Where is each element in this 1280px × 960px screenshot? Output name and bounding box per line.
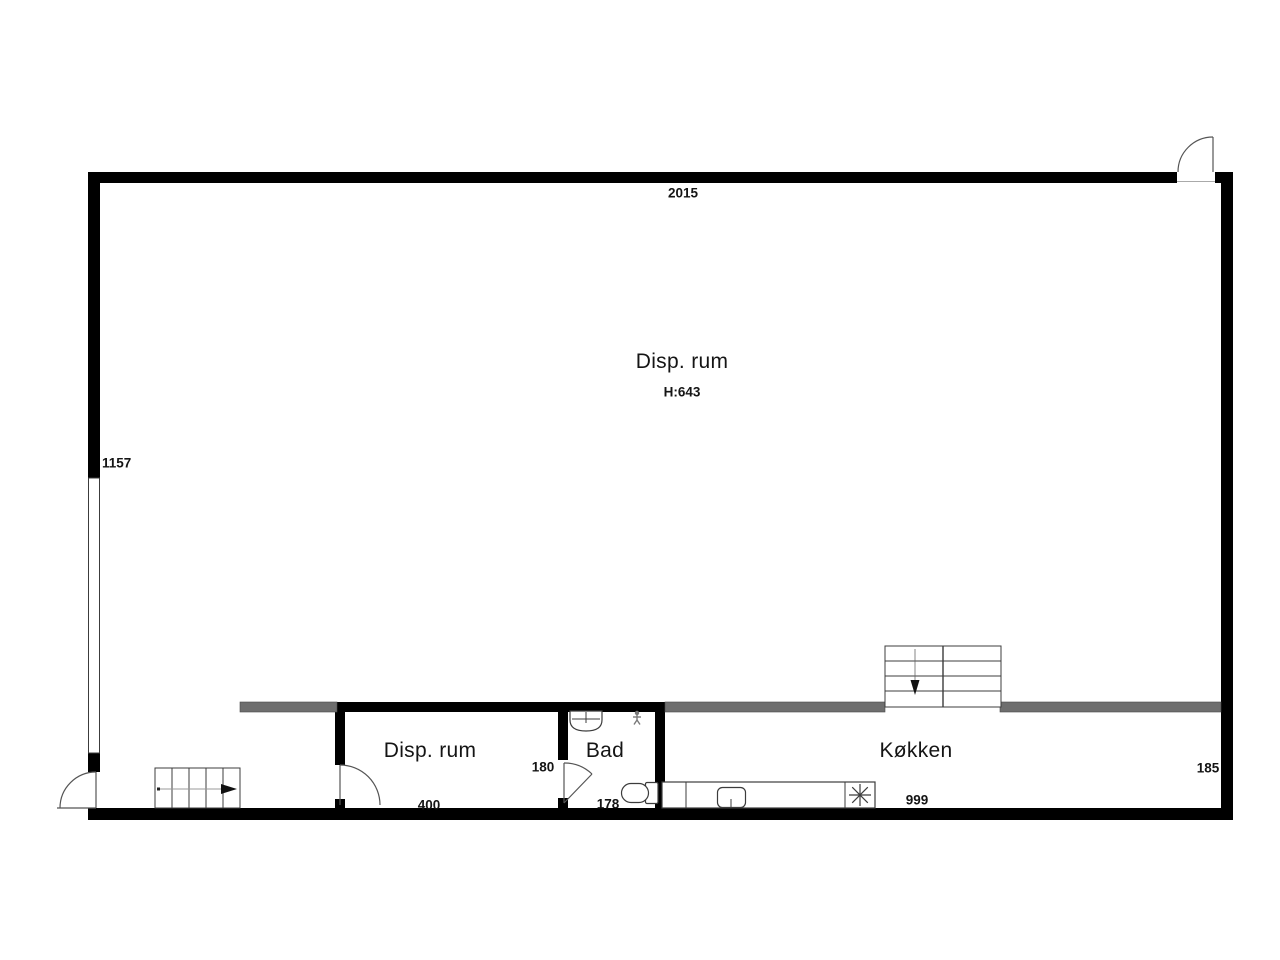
stairs-kitchen (885, 646, 1001, 707)
entry-door (57, 772, 96, 808)
bathroom-label: Bad (586, 739, 624, 763)
dim-storage-width: 400 (418, 798, 441, 813)
main-room-height-note: H:643 (664, 385, 701, 400)
stove-burner-icon (849, 784, 871, 806)
floor-plan-drawing (0, 0, 1280, 960)
storage-room-label: Disp. rum (384, 739, 477, 763)
toilet-icon (622, 783, 659, 804)
kitchen-label: Køkken (880, 739, 953, 763)
main-room-label: Disp. rum (636, 350, 729, 374)
dim-kitchen-width: 999 (906, 793, 929, 808)
left-window (89, 478, 100, 753)
bathroom-door (564, 763, 592, 803)
main-entrance-door (1177, 137, 1215, 182)
dim-left-height: 1157 (102, 456, 131, 471)
person-icon (633, 711, 641, 725)
dim-right-height: 185 (1197, 761, 1220, 776)
sink-icon (570, 711, 602, 731)
dim-top-width: 2015 (668, 186, 698, 201)
kitchen-counter (662, 782, 875, 808)
storage-room-door (340, 765, 380, 805)
dim-bathroom-door: 180 (532, 760, 555, 775)
stairs-entry (155, 768, 240, 808)
dim-bathroom-width: 178 (597, 797, 620, 812)
floor-plan: 2015 1157 Disp. rum H:643 Disp. rum 400 … (0, 0, 1280, 960)
